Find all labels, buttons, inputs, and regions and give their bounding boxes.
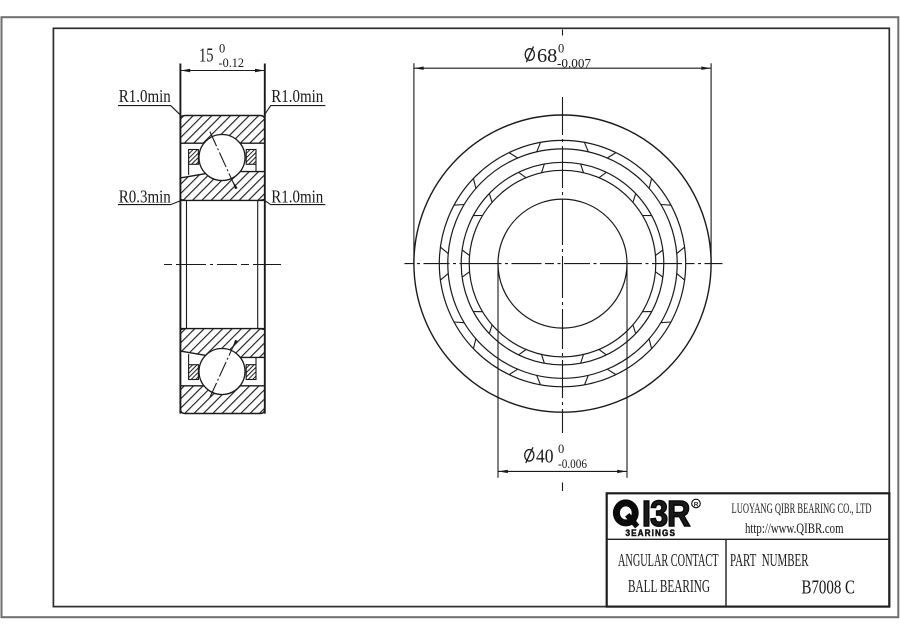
svg-text:R1.0min: R1.0min [119, 86, 171, 106]
svg-text:0: 0 [558, 41, 564, 55]
svg-text:B7008 C: B7008 C [802, 578, 856, 599]
svg-text:15: 15 [199, 44, 214, 66]
svg-text:LUOYANG QIBR BEARING CO., LTD: LUOYANG QIBR BEARING CO., LTD [732, 501, 872, 517]
svg-text:-0.007: -0.007 [557, 56, 591, 70]
svg-text:R1.0min: R1.0min [271, 86, 323, 106]
svg-text:PART NUMBER: PART NUMBER [730, 550, 809, 570]
svg-text:-0.006: -0.006 [558, 457, 587, 471]
svg-text:R1.0min: R1.0min [271, 187, 323, 207]
svg-text:ANGULAR CONTACT: ANGULAR CONTACT [618, 550, 719, 570]
svg-text:-0.12: -0.12 [219, 56, 245, 70]
svg-text:0: 0 [558, 442, 564, 456]
svg-text:0: 0 [219, 42, 225, 56]
svg-text:R0.3min: R0.3min [119, 187, 171, 207]
svg-text:R: R [694, 502, 699, 509]
svg-text:40: 40 [536, 445, 554, 467]
svg-text:http://www.QIBR.com: http://www.QIBR.com [745, 521, 844, 537]
svg-text:3EARINGS: 3EARINGS [626, 528, 677, 538]
svg-text:BALL BEARING: BALL BEARING [628, 576, 710, 596]
svg-text:68: 68 [537, 45, 557, 67]
